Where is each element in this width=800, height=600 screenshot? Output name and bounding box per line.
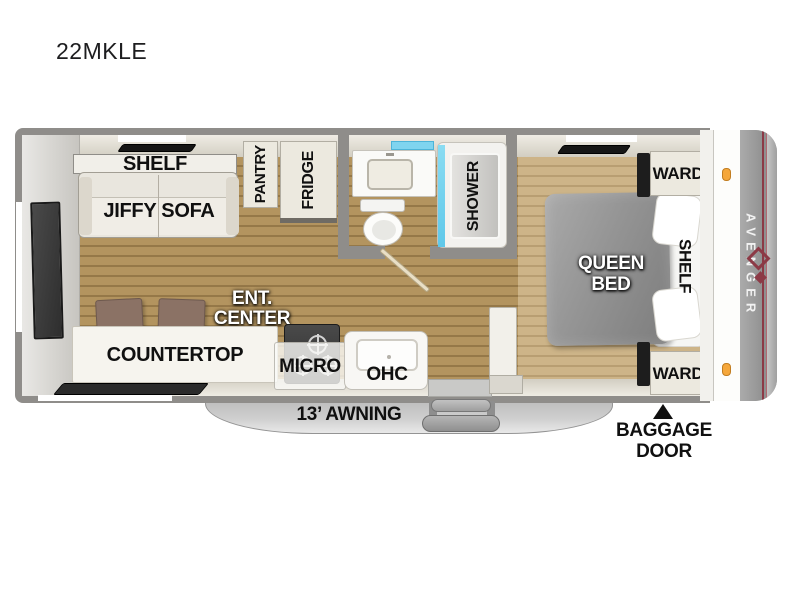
entry-steps <box>421 397 501 441</box>
countertop-label: COUNTERTOP <box>107 345 244 365</box>
front-cap: AVENGER <box>700 130 777 401</box>
bath-wall <box>338 246 385 259</box>
pantry-label: PANTRY <box>253 145 268 203</box>
fridge: FRIDGE <box>280 141 337 219</box>
window <box>118 135 186 142</box>
entry-landing <box>428 379 492 397</box>
roof-vent-icon <box>117 144 197 152</box>
ent-center-label: ENT. CENTER <box>198 289 306 329</box>
marker-light-icon <box>722 363 731 376</box>
step <box>431 399 491 412</box>
bath-wall <box>506 135 517 259</box>
shower-label: SHOWER <box>466 161 482 231</box>
baggage-arrow-icon <box>653 404 673 419</box>
brand-pinstripe <box>766 130 767 401</box>
bath-wall <box>338 135 349 259</box>
shower-label-wrap: SHOWER <box>446 143 502 249</box>
baggage-line1: BAGGAGE <box>600 421 728 442</box>
countertop: COUNTERTOP <box>72 326 278 383</box>
marker-light-icon <box>722 168 731 181</box>
bathroom-skylight <box>391 141 434 150</box>
shelf-bedroom-label-wrap: SHELF <box>668 228 702 304</box>
queen-bed-line2: BED <box>558 275 664 296</box>
ohc-sink: OHC <box>344 331 428 390</box>
floor-mat <box>53 383 209 395</box>
shelf-living: SHELF <box>73 154 237 174</box>
cap-edge <box>766 130 777 401</box>
step <box>422 415 500 432</box>
ward-bottom-pillar <box>637 342 650 386</box>
pantry: PANTRY <box>243 141 278 208</box>
window <box>38 395 172 401</box>
awning-label: 13’ AWNING <box>284 405 414 424</box>
ent-center-line1: ENT. <box>198 289 306 309</box>
queen-bed-label: QUEEN BED <box>558 254 664 296</box>
shower-glass <box>438 145 445 247</box>
jiffy-sofa: JIFFY SOFA <box>78 172 238 238</box>
ward-top: WARD <box>650 151 706 196</box>
toilet <box>358 199 406 247</box>
shelf-bedroom-label: SHELF <box>677 239 694 293</box>
ward-top-label: WARD <box>653 165 704 182</box>
window <box>16 202 22 332</box>
bathroom-sink <box>352 150 436 197</box>
faucet-icon <box>386 153 394 156</box>
shelf-living-label: SHELF <box>123 154 187 174</box>
fridge-base <box>280 218 337 223</box>
baggage-door-label: BAGGAGE DOOR <box>600 421 728 462</box>
floorplan-page: 22MKLE 13’ AWNING SHELF JIFFY SOFA PANTR… <box>0 0 800 600</box>
sofa-label: JIFFY SOFA <box>79 201 239 221</box>
window <box>566 135 637 142</box>
cap-inner-wall <box>700 130 714 401</box>
page-title: 22MKLE <box>56 38 147 65</box>
toilet-bowl-inner <box>372 220 396 240</box>
toilet-tank <box>360 199 405 212</box>
microwave-label: MICRO <box>279 357 341 376</box>
ward-bottom-label: WARD <box>653 365 704 382</box>
toilet-bowl <box>363 212 403 246</box>
sink-basin <box>367 159 413 190</box>
entry-partition-base <box>489 375 523 394</box>
fridge-label: FRIDGE <box>301 151 317 210</box>
awning: 13’ AWNING <box>205 400 613 434</box>
baggage-line2: DOOR <box>600 442 728 463</box>
ohc-label: OHC <box>345 365 429 384</box>
roof-vent-icon <box>557 145 631 154</box>
shower: SHOWER <box>437 142 507 248</box>
drain-icon <box>387 355 391 359</box>
entry-partition <box>489 307 517 379</box>
microwave: MICRO <box>274 342 346 390</box>
queen-bed-line1: QUEEN <box>558 254 664 275</box>
tv <box>30 202 64 340</box>
ward-top-pillar <box>637 153 650 197</box>
ward-bottom: WARD <box>650 351 706 395</box>
